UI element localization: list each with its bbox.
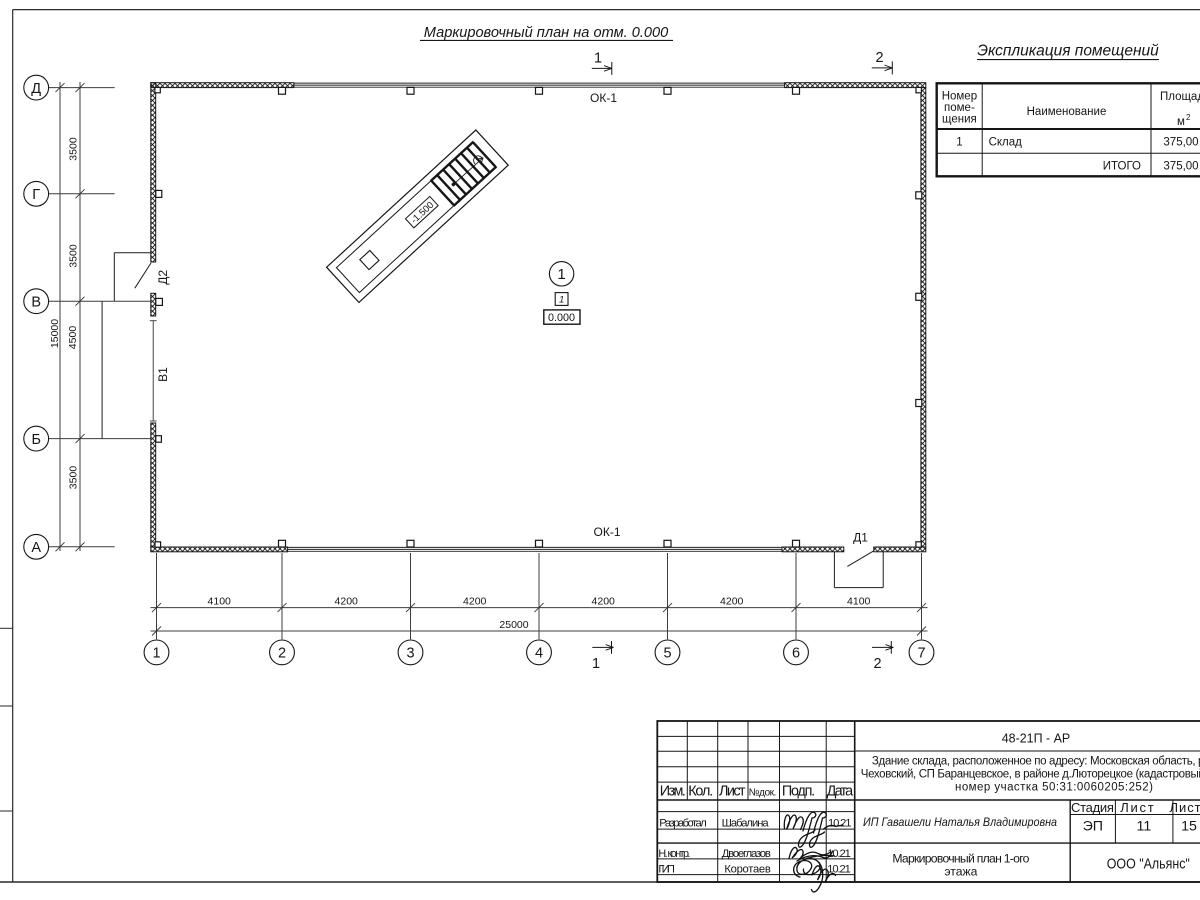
svg-text:1: 1	[956, 137, 962, 149]
svg-text:Двоеглазов: Двоеглазов	[722, 848, 771, 860]
svg-text:2: 2	[1186, 113, 1191, 122]
svg-text:Кол.: Кол.	[688, 784, 713, 800]
svg-text:4200: 4200	[592, 596, 616, 608]
svg-text:3500: 3500	[68, 137, 80, 161]
svg-text:щения: щения	[942, 114, 977, 126]
svg-text:А: А	[31, 540, 41, 556]
svg-text:номер участка 50:31:0060205:25: номер участка 50:31:0060205:252)	[955, 782, 1153, 794]
svg-text:Разработал: Разработал	[659, 817, 707, 829]
svg-text:2: 2	[278, 646, 286, 662]
svg-text:15000: 15000	[49, 319, 61, 348]
svg-text:10.21: 10.21	[828, 817, 852, 829]
svg-text:25000: 25000	[499, 619, 528, 631]
svg-text:3500: 3500	[68, 244, 80, 268]
svg-text:Площадь: Площадь	[1160, 91, 1200, 103]
svg-text:Чеховский, СП Баранцевское, в: Чеховский, СП Баранцевское, в районе д.Л…	[861, 768, 1200, 780]
svg-text:ИП Гавашели Наталья Владимиров: ИП Гавашели Наталья Владимировна	[863, 815, 1057, 829]
svg-text:м: м	[1177, 116, 1185, 128]
svg-text:375,00: 375,00	[1163, 137, 1198, 149]
svg-text:2: 2	[873, 656, 881, 672]
svg-text:375,00: 375,00	[1163, 161, 1198, 173]
svg-text:5: 5	[663, 646, 671, 662]
svg-text:Стадия: Стадия	[1071, 800, 1114, 815]
svg-text:11: 11	[1137, 819, 1152, 835]
svg-text:3500: 3500	[68, 466, 80, 490]
svg-text:ИТОГО: ИТОГО	[1103, 161, 1141, 173]
svg-text:ОК-1: ОК-1	[594, 525, 621, 539]
svg-text:Г: Г	[32, 187, 40, 203]
svg-text:4100: 4100	[847, 596, 871, 608]
svg-text:4200: 4200	[463, 596, 487, 608]
svg-text:7: 7	[917, 646, 925, 662]
svg-text:Б: Б	[31, 432, 41, 448]
svg-text:15: 15	[1181, 819, 1197, 835]
svg-text:3: 3	[406, 646, 414, 662]
svg-text:Изм.: Изм.	[660, 784, 686, 800]
svg-text:Маркировочный план 1-ого: Маркировочный план 1-ого	[892, 852, 1029, 866]
svg-text:ГИП: ГИП	[658, 864, 675, 876]
svg-text:Листов: Листов	[1170, 800, 1200, 815]
svg-text:Д: Д	[31, 81, 41, 97]
svg-text:ОК-1: ОК-1	[590, 91, 617, 105]
svg-text:2: 2	[875, 50, 883, 66]
svg-text:1: 1	[594, 50, 602, 66]
svg-text:Дата: Дата	[827, 784, 854, 800]
svg-text:Лист: Лист	[719, 784, 746, 800]
svg-text:4100: 4100	[208, 596, 232, 608]
svg-text:Коротаев: Коротаев	[724, 864, 770, 876]
svg-text:4200: 4200	[720, 596, 744, 608]
svg-text:Номер: Номер	[942, 91, 977, 103]
svg-text:4: 4	[535, 646, 543, 662]
svg-text:1: 1	[152, 646, 160, 662]
svg-text:1: 1	[592, 656, 600, 672]
svg-text:0.000: 0.000	[548, 312, 575, 324]
svg-text:Маркировочный план на отм. 0.0: Маркировочный план на отм. 0.000	[424, 25, 668, 41]
svg-text:ЭП: ЭП	[1083, 819, 1103, 835]
svg-text:В: В	[31, 294, 41, 310]
svg-text:ООО "Альянс": ООО "Альянс"	[1107, 856, 1190, 872]
svg-text:4200: 4200	[335, 596, 359, 608]
svg-text:Лист: Лист	[1120, 800, 1154, 815]
svg-text:этажа: этажа	[944, 865, 977, 879]
svg-text:Здание склада, расположенное п: Здание склада, расположенное по адресу: …	[872, 755, 1200, 767]
svg-text:Н. контр.: Н. контр.	[658, 848, 690, 860]
svg-text:№док.: №док.	[749, 787, 777, 798]
svg-text:48-21П - АР: 48-21П - АР	[1002, 732, 1071, 746]
svg-text:4500: 4500	[67, 326, 79, 350]
svg-text:Шабалина: Шабалина	[722, 817, 770, 829]
svg-text:1: 1	[559, 294, 564, 305]
svg-text:Подп.: Подп.	[782, 784, 815, 800]
svg-text:Склад: Склад	[989, 137, 1023, 149]
svg-text:Д2: Д2	[156, 270, 170, 285]
svg-text:1: 1	[557, 266, 565, 283]
svg-text:Наименование: Наименование	[1027, 106, 1107, 118]
svg-text:поме-: поме-	[944, 102, 975, 114]
svg-text:Экспликация помещений: Экспликация помещений	[977, 43, 1159, 60]
svg-text:6: 6	[792, 646, 800, 662]
svg-text:В1: В1	[156, 367, 170, 382]
svg-text:Д1: Д1	[853, 531, 868, 545]
